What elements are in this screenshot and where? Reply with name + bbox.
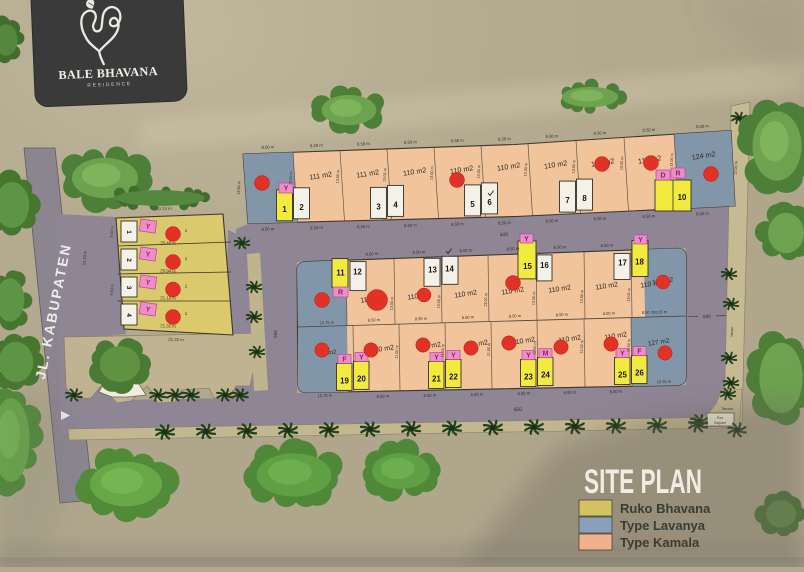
svg-text:8.50 m: 8.50 m <box>603 310 616 316</box>
svg-text:26: 26 <box>635 369 644 378</box>
svg-text:8: 8 <box>582 194 587 203</box>
svg-text:8.50 m: 8.50 m <box>642 213 656 219</box>
svg-text:3: 3 <box>376 202 381 211</box>
svg-text:8.50 m: 8.50 m <box>696 211 710 217</box>
svg-text:8.50 m: 8.50 m <box>462 314 475 320</box>
svg-text:8.50 m: 8.50 m <box>553 244 567 250</box>
svg-text:8.50 m: 8.50 m <box>545 218 559 224</box>
svg-text:Type Kamala: Type Kamala <box>620 535 700 550</box>
svg-text:16: 16 <box>540 261 549 270</box>
svg-text:14: 14 <box>445 264 454 273</box>
svg-text:Ruko Bhavana: Ruko Bhavana <box>620 501 711 516</box>
svg-text:8.50 m: 8.50 m <box>404 222 418 228</box>
svg-text:10: 10 <box>678 193 687 202</box>
svg-text:8.50 m: 8.50 m <box>498 220 512 226</box>
svg-text:3: 3 <box>125 286 132 290</box>
svg-text:8.50 m: 8.50 m <box>545 133 559 139</box>
svg-text:8.50 m: 8.50 m <box>368 317 381 323</box>
svg-text:R: R <box>338 290 343 297</box>
svg-text:10.25 m: 10.25 m <box>657 379 672 385</box>
svg-text:8.50 m: 8.50 m <box>593 216 607 222</box>
svg-text:8.50 m: 8.50 m <box>261 226 275 232</box>
svg-text:10.25 m: 10.25 m <box>653 309 668 315</box>
svg-text:8.50 m: 8.50 m <box>642 127 656 133</box>
svg-text:Y: Y <box>434 355 439 362</box>
svg-text:4: 4 <box>125 313 132 317</box>
svg-text:8.50 m: 8.50 m <box>376 393 390 399</box>
svg-text:1: 1 <box>282 205 287 214</box>
svg-text:8.50 m: 8.50 m <box>415 316 428 322</box>
svg-text:8.50 m: 8.50 m <box>517 390 531 396</box>
svg-text:7: 7 <box>565 196 569 205</box>
svg-text:8.50 m: 8.50 m <box>310 225 324 231</box>
svg-text:Y: Y <box>359 355 364 362</box>
svg-text:D: D <box>660 173 665 180</box>
svg-text:Y: Y <box>284 186 289 193</box>
svg-text:20.94 m: 20.94 m <box>160 268 176 274</box>
svg-text:Y: Y <box>638 237 643 244</box>
svg-text:M: M <box>543 351 549 358</box>
svg-text:8.50 m: 8.50 m <box>506 246 520 252</box>
svg-text:8.50 m: 8.50 m <box>696 123 710 129</box>
svg-text:17: 17 <box>618 259 627 268</box>
svg-text:21: 21 <box>432 375 441 384</box>
svg-text:8.50 m: 8.50 m <box>310 143 324 149</box>
svg-text:Y: Y <box>526 353 531 360</box>
svg-text:5: 5 <box>470 200 475 209</box>
svg-text:8.50 m: 8.50 m <box>459 248 473 254</box>
svg-text:10.75 m: 10.75 m <box>318 393 333 399</box>
svg-text:21.18 m: 21.18 m <box>160 295 176 301</box>
svg-text:R: R <box>675 171 680 178</box>
svg-text:22: 22 <box>449 373 458 382</box>
svg-text:8.50 m: 8.50 m <box>563 390 577 396</box>
svg-text:21.32 m: 21.32 m <box>168 337 184 343</box>
svg-text:8.50 m: 8.50 m <box>451 221 465 227</box>
svg-text:Y: Y <box>524 236 529 243</box>
svg-text:SITE PLAN: SITE PLAN <box>584 463 702 501</box>
svg-text:F: F <box>342 357 347 364</box>
svg-text:8.50 m: 8.50 m <box>509 313 522 319</box>
svg-text:8.50 m: 8.50 m <box>423 392 437 398</box>
svg-text:24: 24 <box>541 371 550 380</box>
svg-text:8.50 m: 8.50 m <box>261 144 275 150</box>
svg-text:15: 15 <box>523 262 532 271</box>
svg-text:600: 600 <box>500 232 509 238</box>
svg-text:8.50 m: 8.50 m <box>609 389 623 395</box>
svg-text:8.50 m: 8.50 m <box>412 249 426 255</box>
svg-text:8.50 m: 8.50 m <box>556 312 569 318</box>
svg-text:8.50 m: 8.50 m <box>600 242 614 248</box>
svg-text:25: 25 <box>618 371 627 380</box>
svg-text:4: 4 <box>393 200 398 209</box>
svg-text:2: 2 <box>125 258 132 262</box>
svg-text:8.50 m: 8.50 m <box>365 251 379 257</box>
svg-text:600: 600 <box>703 314 711 319</box>
svg-text:650: 650 <box>273 330 278 338</box>
svg-text:Y: Y <box>451 353 456 360</box>
svg-text:Y: Y <box>620 351 625 358</box>
svg-text:23: 23 <box>524 373 533 382</box>
svg-text:20: 20 <box>357 374 366 383</box>
svg-text:21.32 m: 21.32 m <box>160 323 176 329</box>
svg-text:20.13 m: 20.13 m <box>156 206 172 212</box>
svg-text:8.50 m: 8.50 m <box>404 139 418 145</box>
svg-text:8.50 m: 8.50 m <box>451 138 465 144</box>
svg-text:13: 13 <box>428 265 437 274</box>
svg-text:8.50 m: 8.50 m <box>593 130 607 136</box>
svg-text:8.50 m: 8.50 m <box>470 391 484 397</box>
svg-text:8.50 m: 8.50 m <box>357 224 371 230</box>
svg-text:Type Lavanya: Type Lavanya <box>620 518 706 533</box>
svg-text:8.50 m: 8.50 m <box>498 136 512 142</box>
svg-text:1: 1 <box>125 230 132 234</box>
svg-text:Taman: Taman <box>730 327 734 337</box>
svg-text:12: 12 <box>353 268 362 277</box>
svg-text:11: 11 <box>336 269 345 278</box>
svg-text:650: 650 <box>514 407 523 413</box>
svg-text:8.50 m: 8.50 m <box>357 141 371 147</box>
svg-text:2: 2 <box>299 203 304 212</box>
svg-text:18: 18 <box>635 258 644 267</box>
svg-text:F: F <box>637 349 642 356</box>
svg-text:10.75 m: 10.75 m <box>320 320 335 326</box>
svg-text:19: 19 <box>340 376 349 385</box>
svg-text:20.49 m: 20.49 m <box>160 240 176 246</box>
svg-text:6: 6 <box>487 198 492 207</box>
